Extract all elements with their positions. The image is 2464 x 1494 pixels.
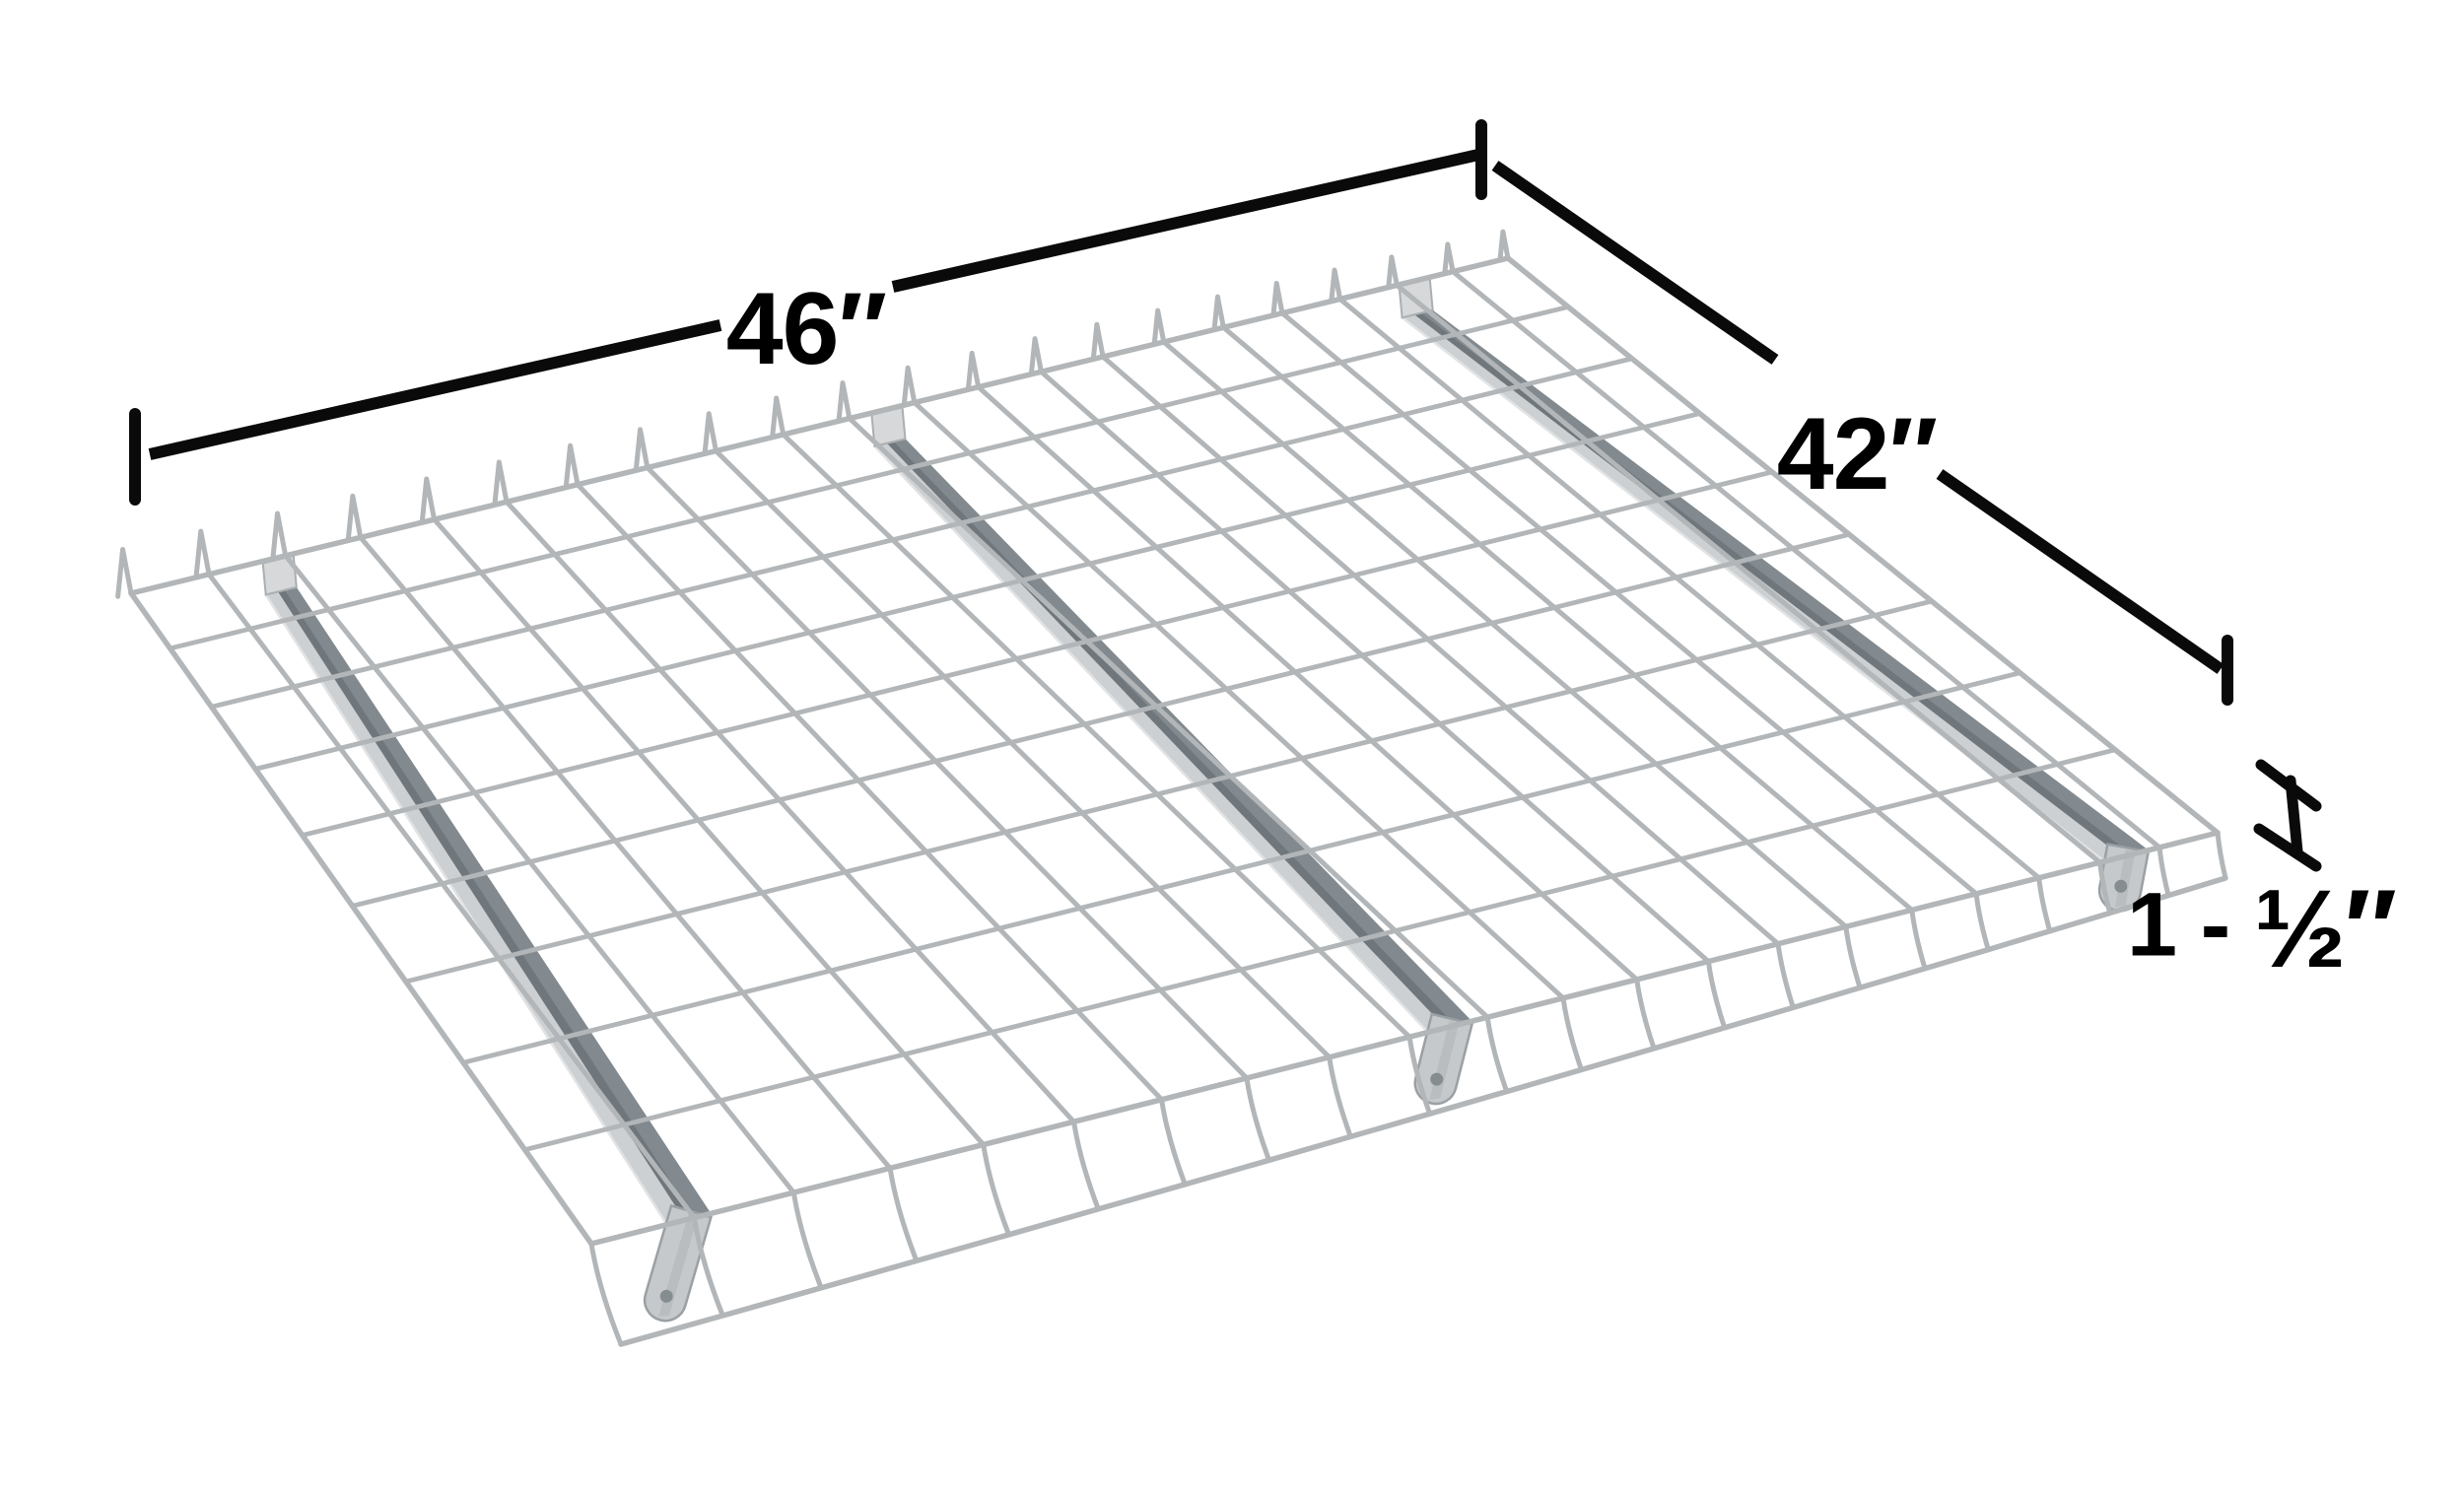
height-label-fraction: ½″ bbox=[2254, 866, 2395, 990]
front-lip-wires bbox=[591, 833, 2225, 1344]
wire-deck-illustration bbox=[0, 0, 2464, 1494]
height-indicator bbox=[2259, 765, 2316, 866]
height-dimension-label: 1 - ½″ bbox=[2127, 873, 2395, 984]
diagram-canvas: 46″ 42″ 1 - ½″ bbox=[0, 0, 2464, 1494]
width-dimension-label: 46″ bbox=[726, 278, 887, 380]
height-label-prefix: 1 - bbox=[2127, 875, 2254, 976]
front-lip-bottom-rail bbox=[621, 878, 2225, 1344]
depth-dimension-label: 42″ bbox=[1777, 403, 1938, 506]
